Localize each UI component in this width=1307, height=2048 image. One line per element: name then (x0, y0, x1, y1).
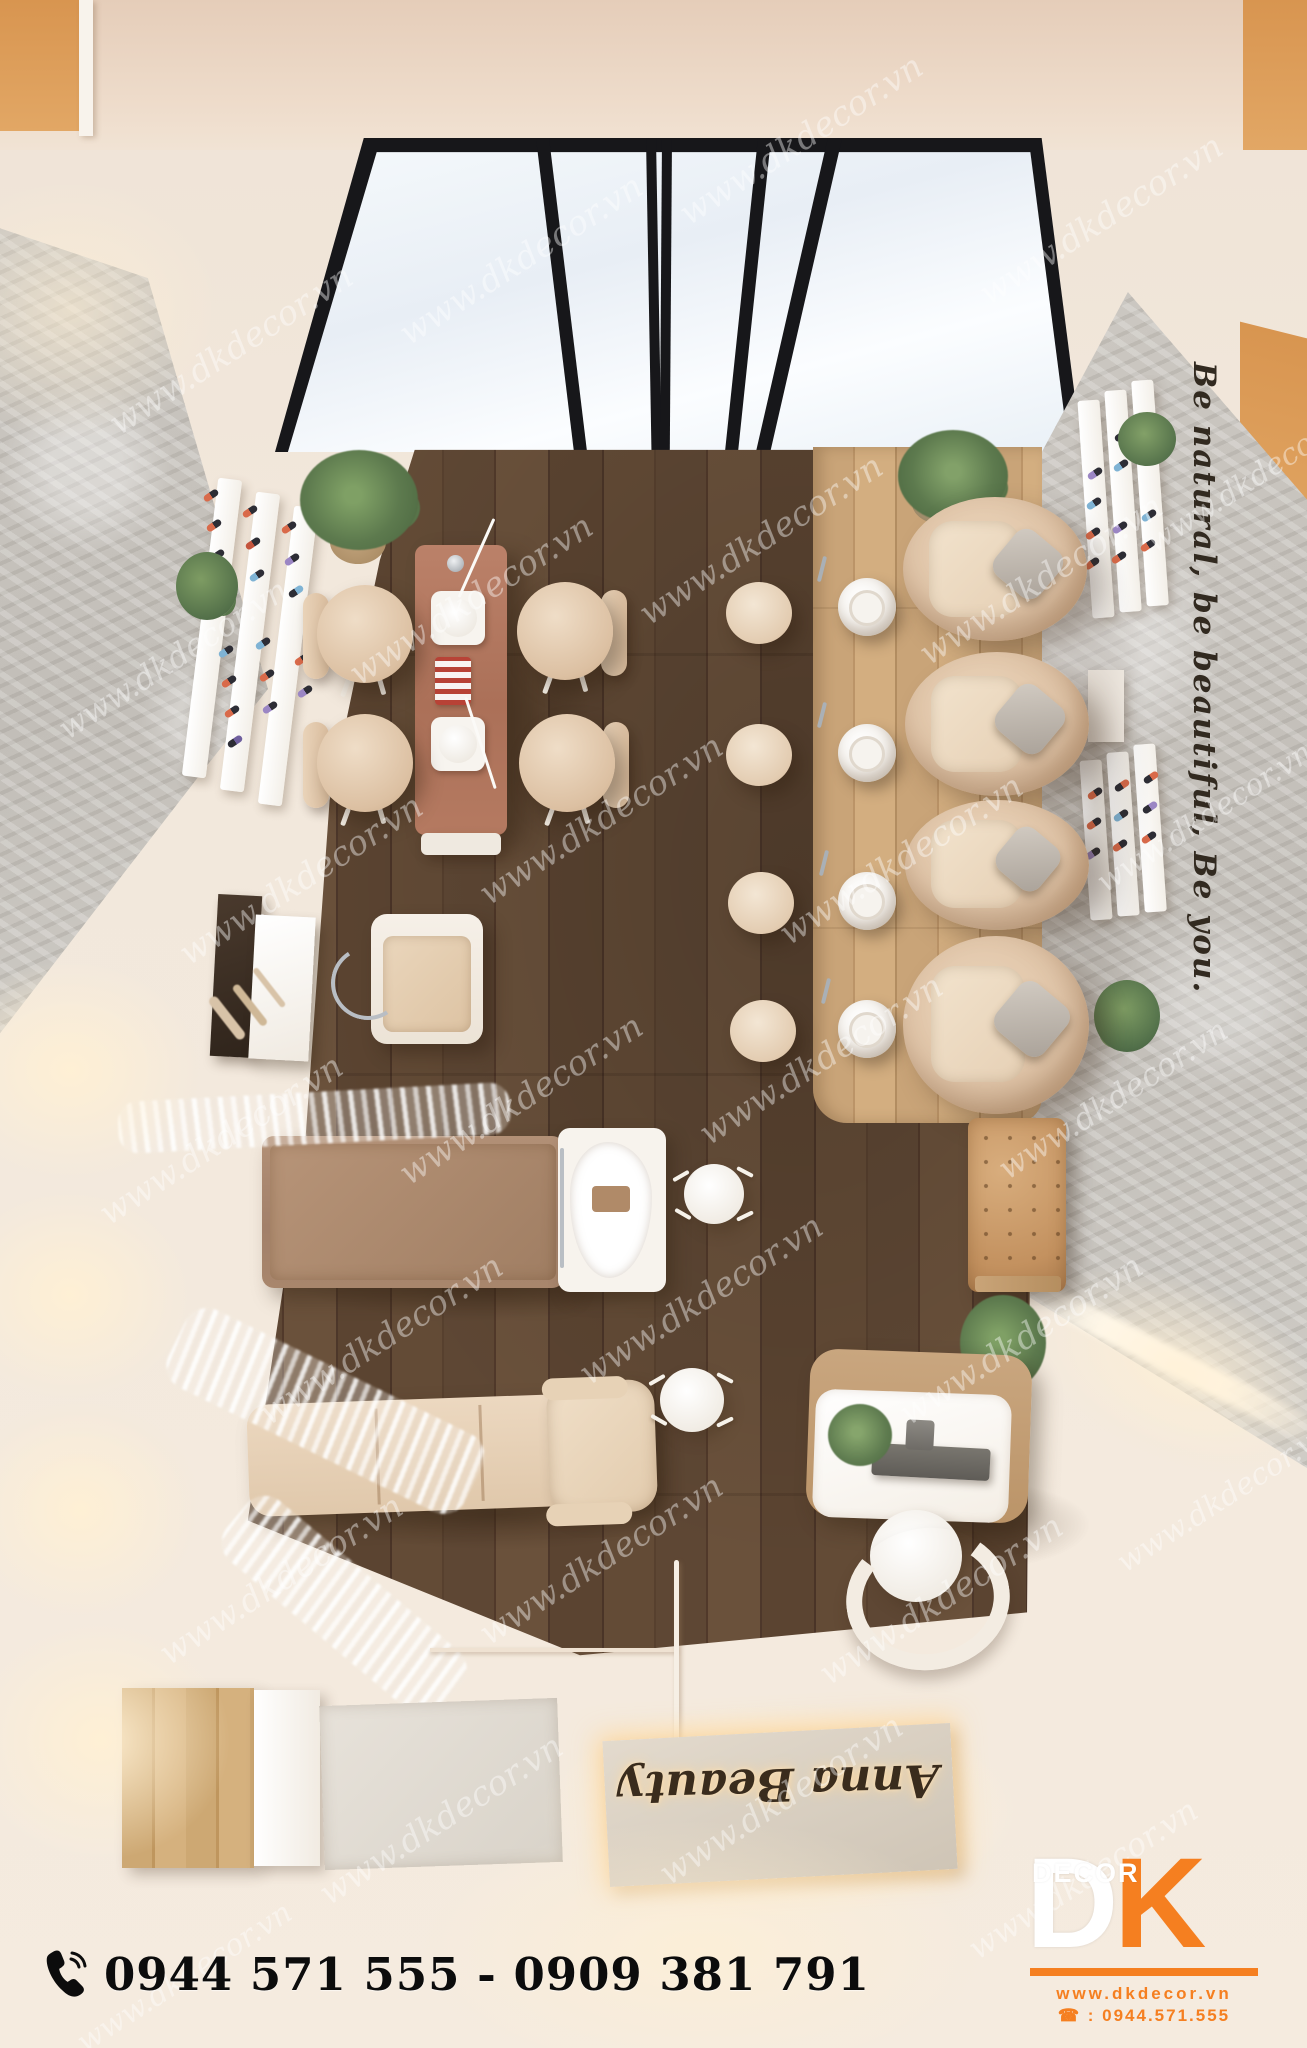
bowl-inner (849, 1012, 885, 1048)
square-lounge-chair (371, 914, 483, 1044)
headrest-wing (541, 1376, 628, 1401)
ceiling-light-wash (0, 180, 220, 440)
chair-seat (519, 714, 615, 812)
pedicure-armchair (903, 497, 1087, 641)
logo-letter-d: D (1026, 1830, 1118, 1977)
floor-sign-text: Anna Beauty (604, 1753, 953, 1815)
floor-light-wash (420, 1820, 980, 2048)
massage-bed (262, 1136, 564, 1288)
tufted-ottoman (968, 1118, 1066, 1292)
manicure-chair (523, 710, 629, 818)
imac-stand (905, 1419, 935, 1450)
table-base (421, 833, 501, 855)
wall-light (0, 1400, 200, 1620)
shelf-plant-right-upper (1118, 412, 1176, 466)
skylight (275, 138, 1082, 452)
chair-leg (340, 679, 351, 698)
lamp-dome (439, 599, 477, 637)
wall-light (0, 1620, 230, 1860)
pedicure-bowl (838, 872, 896, 930)
ceiling-band (0, 0, 1307, 150)
logo-website: www.dkdecor.vn (1030, 1984, 1258, 2004)
cabinet-white-top (254, 1690, 320, 1866)
pedicure-basin-unit (558, 1128, 666, 1292)
side-stool (684, 1164, 744, 1224)
glass-partition-line (430, 1648, 678, 1652)
side-stool (660, 1368, 724, 1432)
lamp-dome (439, 725, 477, 763)
wood-ledge (975, 1276, 1061, 1292)
nail-lamp (431, 591, 485, 645)
manicure-chair (303, 583, 409, 691)
wall-light (0, 960, 200, 1180)
bowl-inner (849, 590, 885, 626)
wood-beam-top-left (0, 0, 79, 131)
display-board (248, 915, 315, 1062)
potted-plant-left (300, 450, 418, 550)
bowl-inner (849, 884, 885, 920)
pedicure-bowl (838, 1000, 896, 1058)
pedicure-armchair (905, 652, 1089, 796)
manicure-chair (521, 580, 627, 688)
technician-stool (730, 1000, 796, 1062)
desk-plant (828, 1404, 892, 1466)
bed-cushion-top (270, 1144, 556, 1280)
phone-icon (38, 1949, 90, 2001)
salon-topview-render: Be natural, be beautiful, Be you. (0, 0, 1307, 2048)
chair-seat (317, 585, 413, 683)
nail-lamp (431, 717, 485, 771)
towel (592, 1186, 630, 1212)
chair-seat (317, 714, 413, 812)
technician-stool (726, 582, 792, 644)
shelf-edge-top-left (79, 0, 93, 136)
logo-decor-label: DECOR (1032, 1858, 1140, 1889)
pedicure-bowl (838, 578, 896, 636)
phone-banner: 0944 571 555 - 0909 381 791 (38, 1948, 870, 2001)
chrome-rail (560, 1148, 564, 1268)
chrome-cup (447, 555, 464, 572)
manicure-table (415, 545, 507, 835)
logo-letter-k: K (1114, 1830, 1206, 1977)
wall-light (0, 1190, 190, 1400)
pedicure-bowl (838, 724, 896, 782)
technician-stool (728, 872, 794, 934)
chair-seat (517, 582, 613, 680)
logo-rule (1030, 1968, 1258, 1976)
logo-hotline: ☎ : 0944.571.555 (1030, 2006, 1258, 2026)
bowl-inner (849, 736, 885, 772)
shelf-plant-left (176, 552, 238, 620)
skylight-glass (275, 138, 1082, 452)
technician-stool (726, 724, 792, 786)
pedicure-armchair (903, 936, 1089, 1114)
pedicure-armchair (905, 800, 1089, 930)
headrest-wing (546, 1502, 633, 1527)
wood-beam-top-right (1243, 0, 1307, 150)
phone-numbers: 0944 571 555 - 0909 381 791 (104, 1948, 870, 2001)
tufting-pattern (968, 1118, 1066, 1292)
manicure-chair (303, 710, 409, 818)
